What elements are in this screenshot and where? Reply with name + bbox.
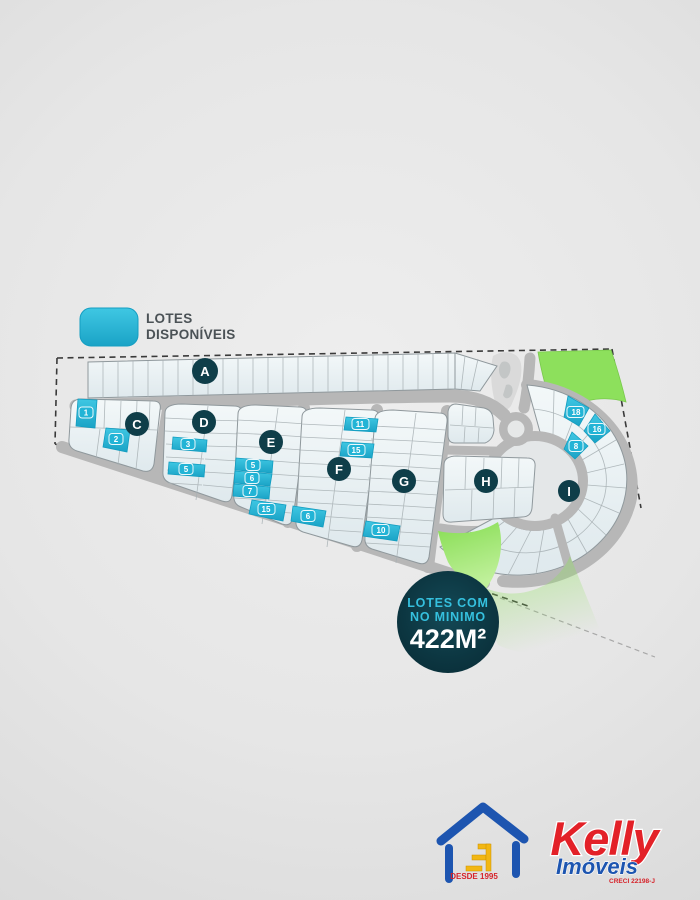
lot-c-1[interactable]: 1 bbox=[76, 399, 97, 428]
section-label-d: D bbox=[192, 410, 216, 434]
section-label-a: A bbox=[192, 358, 218, 384]
svg-text:6: 6 bbox=[306, 512, 311, 521]
svg-text:15: 15 bbox=[352, 446, 361, 455]
logo-since: DESDE 1995 bbox=[450, 872, 498, 881]
svg-text:6: 6 bbox=[250, 474, 255, 483]
legend: LOTES DISPONÍVEIS bbox=[80, 308, 236, 346]
lot-e-5[interactable]: 5 bbox=[235, 458, 273, 473]
badge-line1: LOTES COM bbox=[407, 596, 489, 610]
svg-text:3: 3 bbox=[186, 440, 191, 449]
svg-text:I: I bbox=[567, 484, 571, 499]
upper-h-block bbox=[448, 404, 494, 443]
legend-line2: DISPONÍVEIS bbox=[146, 327, 236, 342]
svg-text:5: 5 bbox=[184, 465, 189, 474]
svg-text:2: 2 bbox=[114, 435, 119, 444]
section-label-f: F bbox=[327, 457, 351, 481]
min-area-badge: LOTES COM NO MINIMO 422M² bbox=[397, 571, 499, 673]
lot-d-3[interactable]: 3 bbox=[172, 437, 207, 452]
svg-text:8: 8 bbox=[574, 442, 579, 451]
svg-text:D: D bbox=[199, 415, 208, 430]
svg-text:5: 5 bbox=[251, 461, 256, 470]
lot-e-6[interactable]: 6 bbox=[234, 471, 272, 486]
legend-available-swatch bbox=[80, 308, 138, 346]
section-label-e: E bbox=[259, 430, 283, 454]
section-label-i: I bbox=[558, 480, 580, 502]
svg-text:18: 18 bbox=[572, 408, 581, 417]
svg-text:F: F bbox=[335, 462, 343, 477]
badge-value: 422M² bbox=[410, 624, 487, 654]
svg-text:C: C bbox=[132, 417, 142, 432]
legend-line1: LOTES bbox=[146, 311, 193, 326]
svg-text:10: 10 bbox=[377, 526, 386, 535]
logo-license: CRECI 22198-J bbox=[609, 878, 655, 885]
house-icon bbox=[441, 807, 524, 879]
svg-text:E: E bbox=[267, 435, 276, 450]
badge-line2: NO MINIMO bbox=[410, 610, 486, 624]
svg-text:16: 16 bbox=[593, 425, 602, 434]
svg-text:A: A bbox=[200, 364, 210, 379]
lot-d-5[interactable]: 5 bbox=[168, 462, 205, 477]
svg-text:H: H bbox=[481, 474, 490, 489]
section-label-c: C bbox=[125, 412, 149, 436]
lot-map-flyer: 1 2 3 5 5 6 7 bbox=[0, 0, 700, 900]
logo-category: Imóveis bbox=[556, 854, 638, 879]
svg-text:7: 7 bbox=[248, 487, 253, 496]
lot-e-7[interactable]: 7 bbox=[233, 484, 270, 499]
section-label-h: H bbox=[474, 469, 498, 493]
svg-text:G: G bbox=[399, 474, 409, 489]
svg-text:1: 1 bbox=[84, 409, 89, 418]
section-label-g: G bbox=[392, 469, 416, 493]
lot-f-11[interactable]: 11 bbox=[344, 417, 378, 432]
brand-logo: DESDE 1995 Kelly Imóveis CRECI 22198-J bbox=[441, 807, 662, 885]
lot-f-15[interactable]: 15 bbox=[340, 442, 374, 458]
svg-text:15: 15 bbox=[262, 505, 271, 514]
svg-text:11: 11 bbox=[356, 420, 365, 429]
